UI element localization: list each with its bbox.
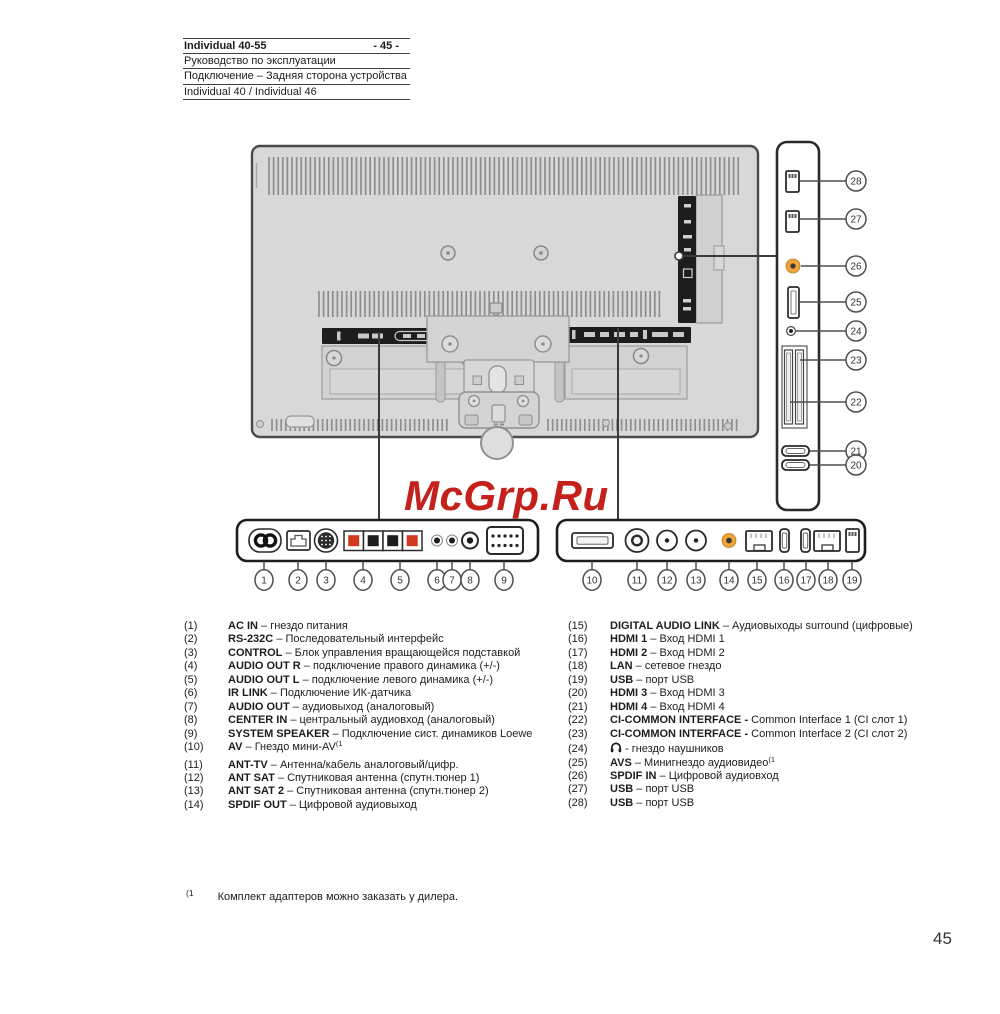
legend-num: (7) <box>184 701 228 714</box>
headphones-icon <box>610 741 622 753</box>
callout-num-18: 18 <box>822 576 834 587</box>
legend-item-11: (11)ANT-TV – Антенна/кабель аналоговый/ц… <box>184 759 566 772</box>
legend-item-25: (25)AVS – Минигнездо аудиовидео(1 <box>568 757 983 770</box>
legend-item-3: (3)CONTROL – Блок управления вращающейся… <box>184 647 566 660</box>
callout-num-3: 3 <box>323 576 329 587</box>
callouts-bottom: 12345678910111213141516171819 <box>255 562 861 591</box>
hdmi3-port <box>782 460 809 470</box>
legend-item-16: (16)HDMI 1 – Вход HDMI 1 <box>568 633 983 646</box>
legend-item-24: (24)- гнездо наушников <box>568 741 983 756</box>
section-title: Подключение – Задняя сторона устройства <box>184 70 407 82</box>
system-speaker-connector <box>487 527 523 554</box>
model-variants: Individual 40 / Individual 46 <box>184 86 317 98</box>
legend-text: IR LINK – Подключение ИК-датчика <box>228 687 411 700</box>
callout-num-7: 7 <box>449 576 455 587</box>
legend-num: (11) <box>184 759 228 772</box>
speaker-terminals <box>344 531 422 551</box>
footnote-marker: (1 <box>186 888 194 898</box>
lan-port <box>814 531 840 551</box>
legend-num: (18) <box>568 660 610 673</box>
rs232-connector <box>287 531 310 550</box>
manual-title: Руководство по эксплуатации <box>184 55 336 67</box>
av-slot <box>572 533 613 548</box>
legend-num: (17) <box>568 647 610 660</box>
legend-text: CENTER IN – центральный аудиовход (анало… <box>228 714 495 727</box>
legend-item-13: (13)ANT SAT 2 – Спутниковая антенна (спу… <box>184 785 566 798</box>
legend-text: AUDIO OUT R – подключение правого динами… <box>228 660 500 673</box>
callout-num-4: 4 <box>360 576 366 587</box>
legend-text: LAN – сетевое гнездо <box>610 660 721 673</box>
callout-num-10: 10 <box>586 576 598 587</box>
callout-num-25: 25 <box>850 298 862 309</box>
legend-item-15: (15)DIGITAL AUDIO LINK – Аудиовыходы sur… <box>568 620 983 633</box>
callout-num-2: 2 <box>295 576 301 587</box>
legend-item-23: (23)CI-COMMON INTERFACE - Common Interfa… <box>568 728 983 741</box>
usb-port-27 <box>786 211 799 232</box>
legend-text: ANT SAT 2 – Спутниковая антенна (спутн.т… <box>228 785 489 798</box>
legend-text: HDMI 1 – Вход HDMI 1 <box>610 633 725 646</box>
legend-text: USB – порт USB <box>610 797 694 810</box>
callout-num-27: 27 <box>850 215 862 226</box>
watermark: McGrp.Ru <box>404 472 609 520</box>
callout-num-20: 20 <box>850 461 862 472</box>
spdif-in-connector <box>786 259 800 273</box>
legend-num: (9) <box>184 728 228 741</box>
legend-text: RS-232C – Последовательный интерфейс <box>228 633 444 646</box>
callout-num-16: 16 <box>778 576 790 587</box>
callout-num-14: 14 <box>723 576 735 587</box>
hdmi1-port <box>780 529 789 552</box>
legend-num: (2) <box>184 633 228 646</box>
legend-text: HDMI 3 – Вход HDMI 3 <box>610 687 725 700</box>
legend-num: (20) <box>568 687 610 700</box>
legend-num: (5) <box>184 674 228 687</box>
callout-num-13: 13 <box>690 576 702 587</box>
ant-sat2-connector <box>686 531 706 551</box>
header-row-title: Individual 40-55 - 45 - <box>183 39 410 54</box>
legend-item-19: (19)USB – порт USB <box>568 674 983 687</box>
callout-num-28: 28 <box>850 177 862 188</box>
ant-tv-connector <box>626 529 649 552</box>
legend-text: SPDIF OUT – Цифровой аудиовыход <box>228 799 417 812</box>
spdif-out-connector <box>722 534 736 548</box>
legend-item-22: (22)CI-COMMON INTERFACE - Common Interfa… <box>568 714 983 727</box>
bottom-left-panel <box>237 520 538 561</box>
legend-text: AUDIO OUT L – подключение левого динамик… <box>228 674 493 687</box>
legend-item-21: (21)HDMI 4 – Вход HDMI 4 <box>568 701 983 714</box>
legend-text: - гнездо наушников <box>610 741 724 756</box>
side-panel-detail <box>777 142 819 510</box>
manual-page: 282726252423222120 123456789101112131415… <box>0 0 1000 1014</box>
legend-num: (10) <box>184 741 228 754</box>
ant-sat-connector <box>657 531 677 551</box>
usb-port-19 <box>846 529 859 552</box>
header-row-section: Подключение – Задняя сторона устройства <box>183 69 410 84</box>
legend-item-27: (27)USB – порт USB <box>568 783 983 796</box>
legend-num: (12) <box>184 772 228 785</box>
bottom-right-panel <box>557 520 865 561</box>
legend-num: (8) <box>184 714 228 727</box>
legend-item-8: (8)CENTER IN – центральный аудиовход (ан… <box>184 714 566 727</box>
legend-num: (1) <box>184 620 228 633</box>
legend-text: CI-COMMON INTERFACE - Common Interface 2… <box>610 728 907 741</box>
usb-port-28 <box>786 171 799 192</box>
legend-num: (14) <box>184 799 228 812</box>
callout-num-12: 12 <box>661 576 673 587</box>
legend-num: (6) <box>184 687 228 700</box>
legend-num: (4) <box>184 660 228 673</box>
legend-left-column: (1)AC IN – гнездо питания(2)RS-232C – По… <box>184 620 566 812</box>
callout-num-6: 6 <box>434 576 440 587</box>
legend-num: (23) <box>568 728 610 741</box>
legend-num: (15) <box>568 620 610 633</box>
ci-slots <box>782 346 807 428</box>
footnote-text: Комплект адаптеров можно заказать у диле… <box>218 891 458 903</box>
legend-item-2: (2)RS-232C – Последовательный интерфейс <box>184 633 566 646</box>
model-name: Individual 40-55 <box>184 40 267 52</box>
legend-num: (13) <box>184 785 228 798</box>
side-connector-strip <box>678 195 724 323</box>
header-row-models: Individual 40 / Individual 46 <box>183 85 410 100</box>
callout-num-23: 23 <box>850 356 862 367</box>
callout-num-8: 8 <box>467 576 473 587</box>
callout-num-22: 22 <box>850 398 862 409</box>
legend-num: (27) <box>568 783 610 796</box>
tv-back <box>252 146 758 459</box>
legend-num: (22) <box>568 714 610 727</box>
callout-num-19: 19 <box>846 576 858 587</box>
legend-item-26: (26)SPDIF IN – Цифровой аудиовход <box>568 770 983 783</box>
legend-text: AVS – Минигнездо аудиовидео(1 <box>610 757 775 770</box>
legend-item-9: (9)SYSTEM SPEAKER – Подключение сист. ди… <box>184 728 566 741</box>
legend-item-20: (20)HDMI 3 – Вход HDMI 3 <box>568 687 983 700</box>
page-number: 45 <box>933 929 952 949</box>
legend-item-12: (12)ANT SAT – Спутниковая антенна (спутн… <box>184 772 566 785</box>
legend-right-column: (15)DIGITAL AUDIO LINK – Аудиовыходы sur… <box>568 620 983 810</box>
legend-text: HDMI 2 – Вход HDMI 2 <box>610 647 725 660</box>
page-ref: - 45 - <box>373 40 409 52</box>
legend-text: USB – порт USB <box>610 674 694 687</box>
legend-item-1: (1)AC IN – гнездо питания <box>184 620 566 633</box>
legend-text: ANT SAT – Спутниковая антенна (спутн.тюн… <box>228 772 479 785</box>
legend-num: (19) <box>568 674 610 687</box>
callout-num-26: 26 <box>850 262 862 273</box>
legend-num: (26) <box>568 770 610 783</box>
hdmi2-port <box>801 529 810 552</box>
legend-item-17: (17)HDMI 2 – Вход HDMI 2 <box>568 647 983 660</box>
legend-text: USB – порт USB <box>610 783 694 796</box>
control-connector <box>315 529 338 552</box>
legend-item-5: (5)AUDIO OUT L – подключение левого дина… <box>184 674 566 687</box>
legend-num: (16) <box>568 633 610 646</box>
callout-num-11: 11 <box>632 576 643 587</box>
callout-num-5: 5 <box>397 576 403 587</box>
hdmi4-port <box>782 446 809 456</box>
legend-num: (25) <box>568 757 610 770</box>
legend-item-6: (6)IR LINK – Подключение ИК-датчика <box>184 687 566 700</box>
legend-item-18: (18)LAN – сетевое гнездо <box>568 660 983 673</box>
legend-text: AV – Гнездо мини-AV(1 <box>228 741 343 754</box>
ac-in-connector <box>249 529 281 552</box>
legend-text: CI-COMMON INTERFACE - Common Interface 1… <box>610 714 907 727</box>
header-table: Individual 40-55 - 45 - Руководство по э… <box>183 38 410 100</box>
callout-num-9: 9 <box>501 576 507 587</box>
legend-num: (21) <box>568 701 610 714</box>
legend-item-4: (4)AUDIO OUT R – подключение правого дин… <box>184 660 566 673</box>
legend-num: (24) <box>568 743 610 756</box>
callout-num-15: 15 <box>751 576 763 587</box>
legend-item-10: (10)AV – Гнездо мини-AV(1 <box>184 741 566 754</box>
avs-slot <box>788 287 799 318</box>
footnote: (1Комплект адаптеров можно заказать у ди… <box>186 888 458 903</box>
legend-text: DIGITAL AUDIO LINK – Аудиовыходы surroun… <box>610 620 913 633</box>
legend-item-7: (7)AUDIO OUT – аудиовыход (аналоговый) <box>184 701 566 714</box>
legend-text: SPDIF IN – Цифровой аудиовход <box>610 770 779 783</box>
legend-text: SYSTEM SPEAKER – Подключение сист. динам… <box>228 728 532 741</box>
legend-text: ANT-TV – Антенна/кабель аналоговый/цифр. <box>228 759 459 772</box>
callout-num-24: 24 <box>850 327 862 338</box>
legend-text: AC IN – гнездо питания <box>228 620 348 633</box>
legend-text: CONTROL – Блок управления вращающейся по… <box>228 647 520 660</box>
legend-text: AUDIO OUT – аудиовыход (аналоговый) <box>228 701 434 714</box>
headphone-jack <box>787 327 796 336</box>
legend-item-28: (28)USB – порт USB <box>568 797 983 810</box>
digital-audio-link-port <box>746 531 772 551</box>
callout-num-17: 17 <box>800 576 812 587</box>
center-in-jack <box>462 533 478 549</box>
legend-text: HDMI 4 – Вход HDMI 4 <box>610 701 725 714</box>
legend-num: (3) <box>184 647 228 660</box>
legend-item-14: (14)SPDIF OUT – Цифровой аудиовыход <box>184 799 566 812</box>
legend-num: (28) <box>568 797 610 810</box>
callout-num-1: 1 <box>261 576 267 587</box>
header-row-manual: Руководство по эксплуатации <box>183 54 410 69</box>
